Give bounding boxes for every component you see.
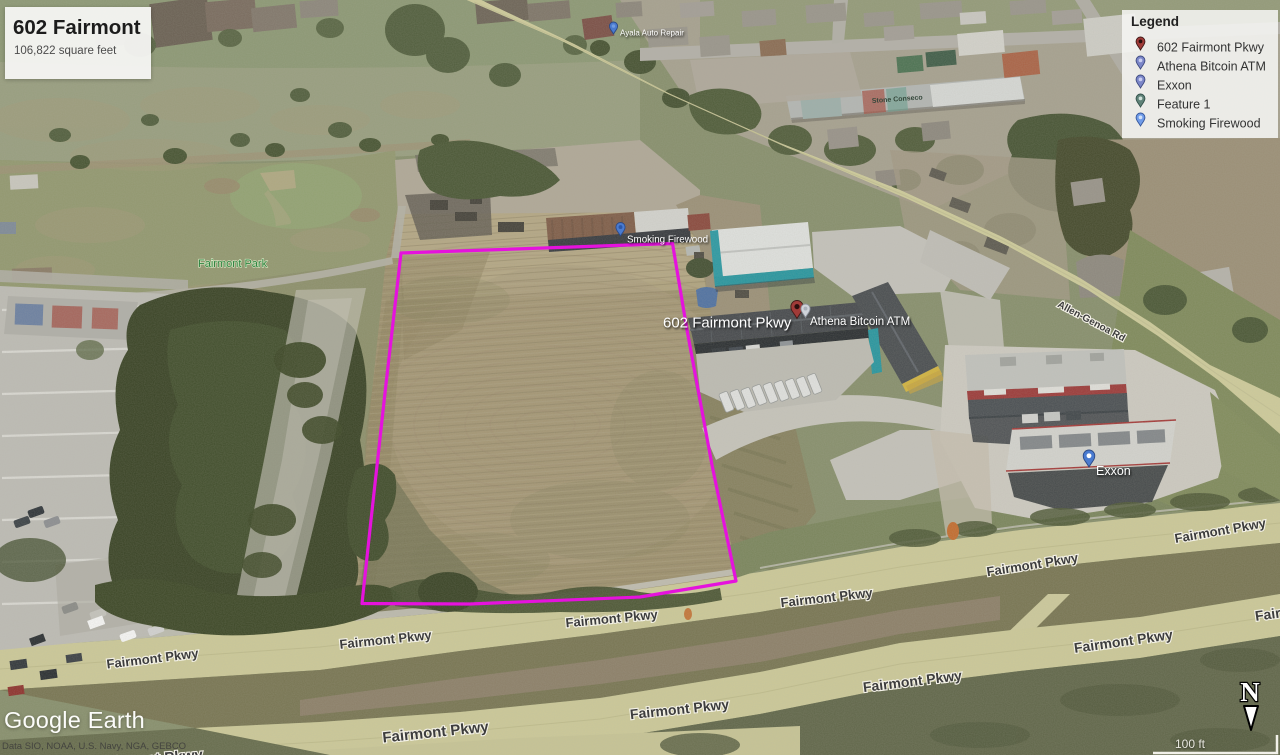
svg-text:Athena Bitcoin ATM: Athena Bitcoin ATM: [1157, 60, 1266, 74]
svg-text:Exxon: Exxon: [1096, 464, 1131, 478]
svg-text:Legend: Legend: [1131, 14, 1179, 29]
svg-text:Google Earth: Google Earth: [4, 707, 145, 733]
svg-text:106,822 square feet: 106,822 square feet: [14, 45, 117, 57]
svg-text:Athena Bitcoin ATM: Athena Bitcoin ATM: [810, 316, 910, 328]
svg-text:602 Fairmont Pkwy: 602 Fairmont Pkwy: [663, 315, 792, 332]
svg-text:Fairmont Park: Fairmont Park: [198, 258, 268, 270]
svg-text:602 Fairmont Pkwy: 602 Fairmont Pkwy: [1157, 41, 1265, 55]
svg-text:Ayala Auto Repair: Ayala Auto Repair: [620, 29, 684, 38]
svg-text:Smoking Firewood: Smoking Firewood: [1157, 117, 1261, 131]
svg-text:100 ft: 100 ft: [1175, 737, 1206, 751]
svg-text:602 Fairmont: 602 Fairmont: [13, 16, 141, 39]
svg-text:Exxon: Exxon: [1157, 79, 1192, 93]
svg-text:N: N: [1240, 677, 1260, 707]
svg-text:Smoking Firewood: Smoking Firewood: [627, 235, 708, 246]
svg-text:Data SIO, NOAA, U.S. Navy, NGA: Data SIO, NOAA, U.S. Navy, NGA, GEBCO: [2, 741, 186, 752]
svg-text:Feature 1: Feature 1: [1157, 98, 1211, 112]
